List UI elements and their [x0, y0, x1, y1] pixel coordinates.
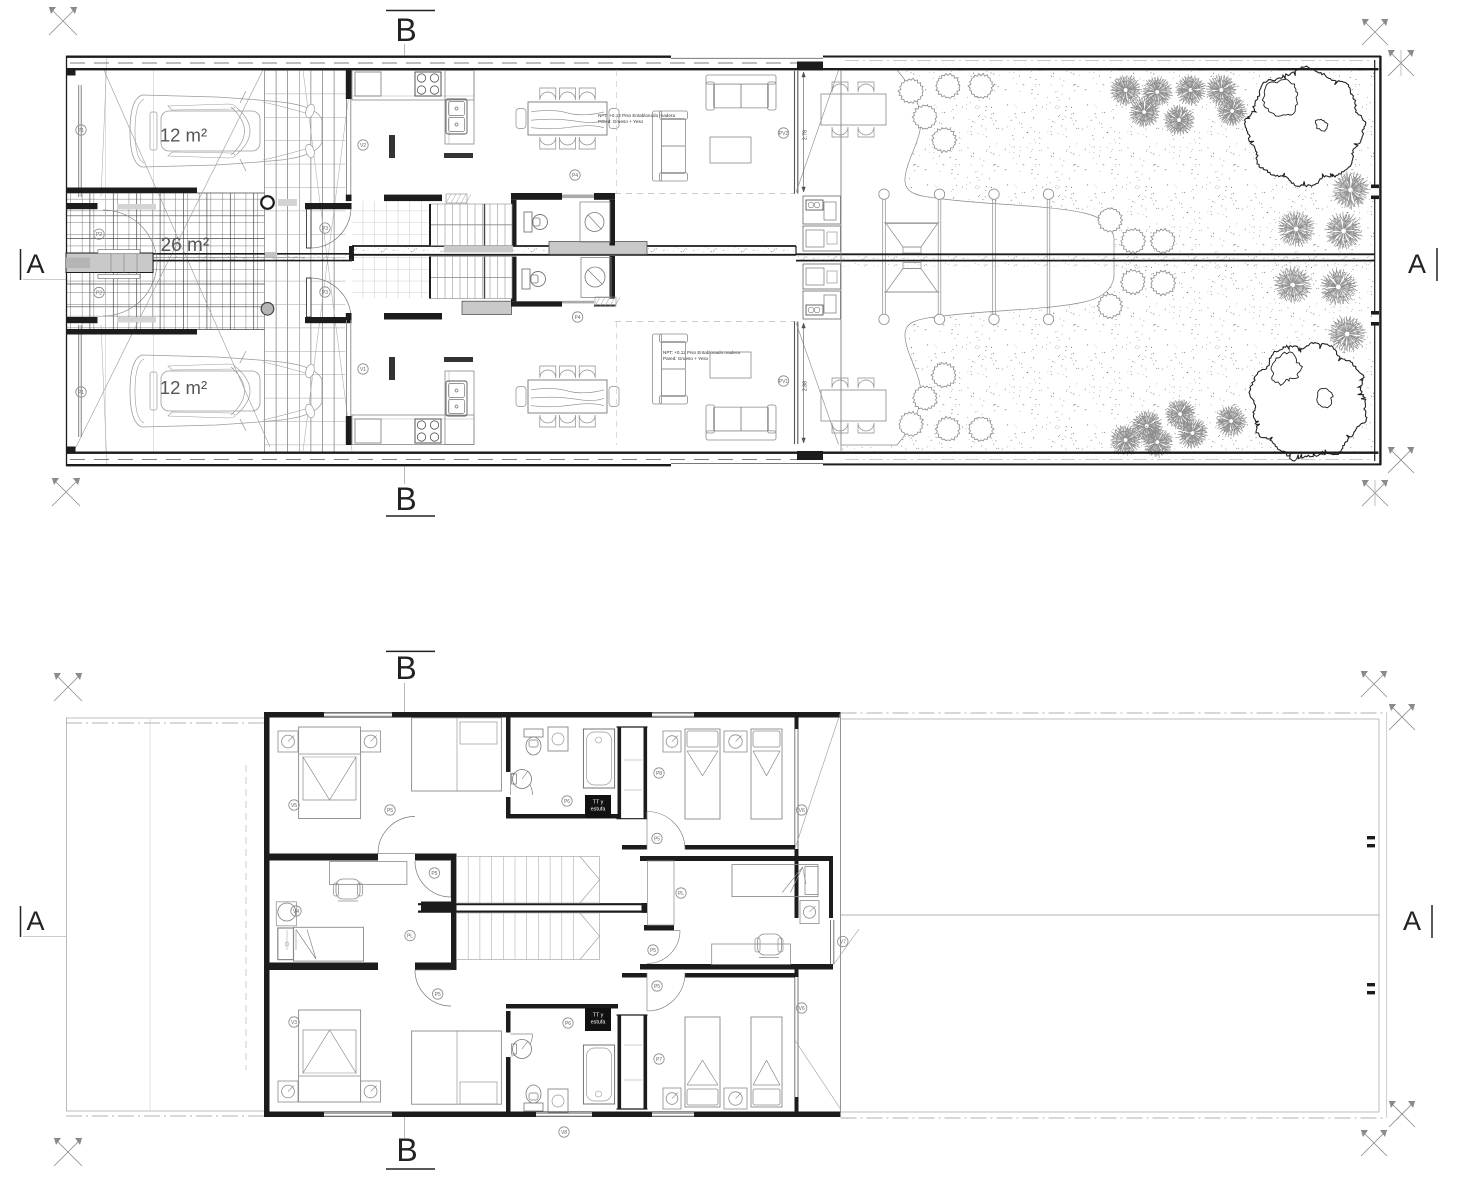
svg-text:B: B [396, 1132, 417, 1168]
svg-text:TT y: TT y [593, 1013, 604, 1019]
svg-text:V5: V5 [291, 803, 297, 809]
svg-text:A: A [1403, 906, 1421, 936]
svg-text:V2: V2 [360, 143, 366, 149]
svg-text:A: A [26, 906, 44, 936]
svg-text:P3: P3 [322, 290, 328, 296]
svg-text:PL: PL [407, 933, 413, 939]
svg-text:P5: P5 [654, 836, 660, 842]
svg-text:B: B [395, 12, 416, 48]
svg-text:12 m²: 12 m² [160, 125, 207, 146]
svg-text:V3: V3 [291, 1020, 297, 1026]
svg-text:P1: P1 [78, 390, 84, 396]
svg-text:PV1: PV1 [779, 379, 789, 385]
svg-text:P5: P5 [654, 984, 660, 990]
svg-text:PV2: PV2 [779, 131, 789, 137]
svg-text:P7: P7 [656, 1057, 662, 1063]
svg-text:NPT: +0.12 Piso Entablonado ma: NPT: +0.12 Piso Entablonado madera [598, 113, 675, 118]
svg-text:2.78: 2.78 [803, 130, 809, 140]
svg-text:NPT: +0.12 Piso Entablonado ma: NPT: +0.12 Piso Entablonado madera [663, 350, 740, 355]
svg-text:V7: V7 [840, 939, 846, 945]
svg-text:TT y: TT y [593, 800, 604, 806]
svg-text:P5: P5 [650, 948, 656, 954]
svg-text:P6: P6 [565, 1021, 571, 1027]
svg-text:26 m²: 26 m² [161, 235, 210, 256]
svg-text:P3: P3 [322, 226, 328, 232]
svg-text:A: A [26, 249, 44, 279]
svg-text:P2: P2 [96, 290, 102, 296]
svg-text:P2: P2 [96, 232, 102, 238]
svg-text:A: A [1408, 249, 1426, 279]
svg-text:P5: P5 [387, 808, 393, 814]
svg-text:P8: P8 [656, 771, 662, 777]
svg-text:P1: P1 [78, 128, 84, 134]
svg-text:V4: V4 [293, 909, 299, 915]
svg-text:estufa: estufa [591, 807, 606, 813]
svg-text:V6: V6 [799, 808, 805, 814]
svg-text:B: B [395, 650, 416, 686]
svg-text:B: B [395, 481, 416, 517]
svg-text:V6: V6 [799, 1006, 805, 1012]
svg-text:V1: V1 [360, 367, 366, 373]
svg-text:PL: PL [678, 891, 684, 897]
svg-text:P4: P4 [572, 173, 578, 179]
svg-text:12 m²: 12 m² [160, 377, 207, 398]
svg-text:P4: P4 [575, 315, 581, 321]
svg-text:Pared: Grueso + Yeso: Pared: Grueso + Yeso [598, 119, 644, 124]
svg-text:2.88: 2.88 [803, 381, 809, 391]
svg-text:P5: P5 [435, 992, 441, 998]
svg-text:P5: P5 [431, 871, 437, 877]
svg-text:P6: P6 [564, 799, 570, 805]
svg-text:estufa: estufa [591, 1020, 606, 1026]
svg-text:V8: V8 [561, 1130, 567, 1136]
